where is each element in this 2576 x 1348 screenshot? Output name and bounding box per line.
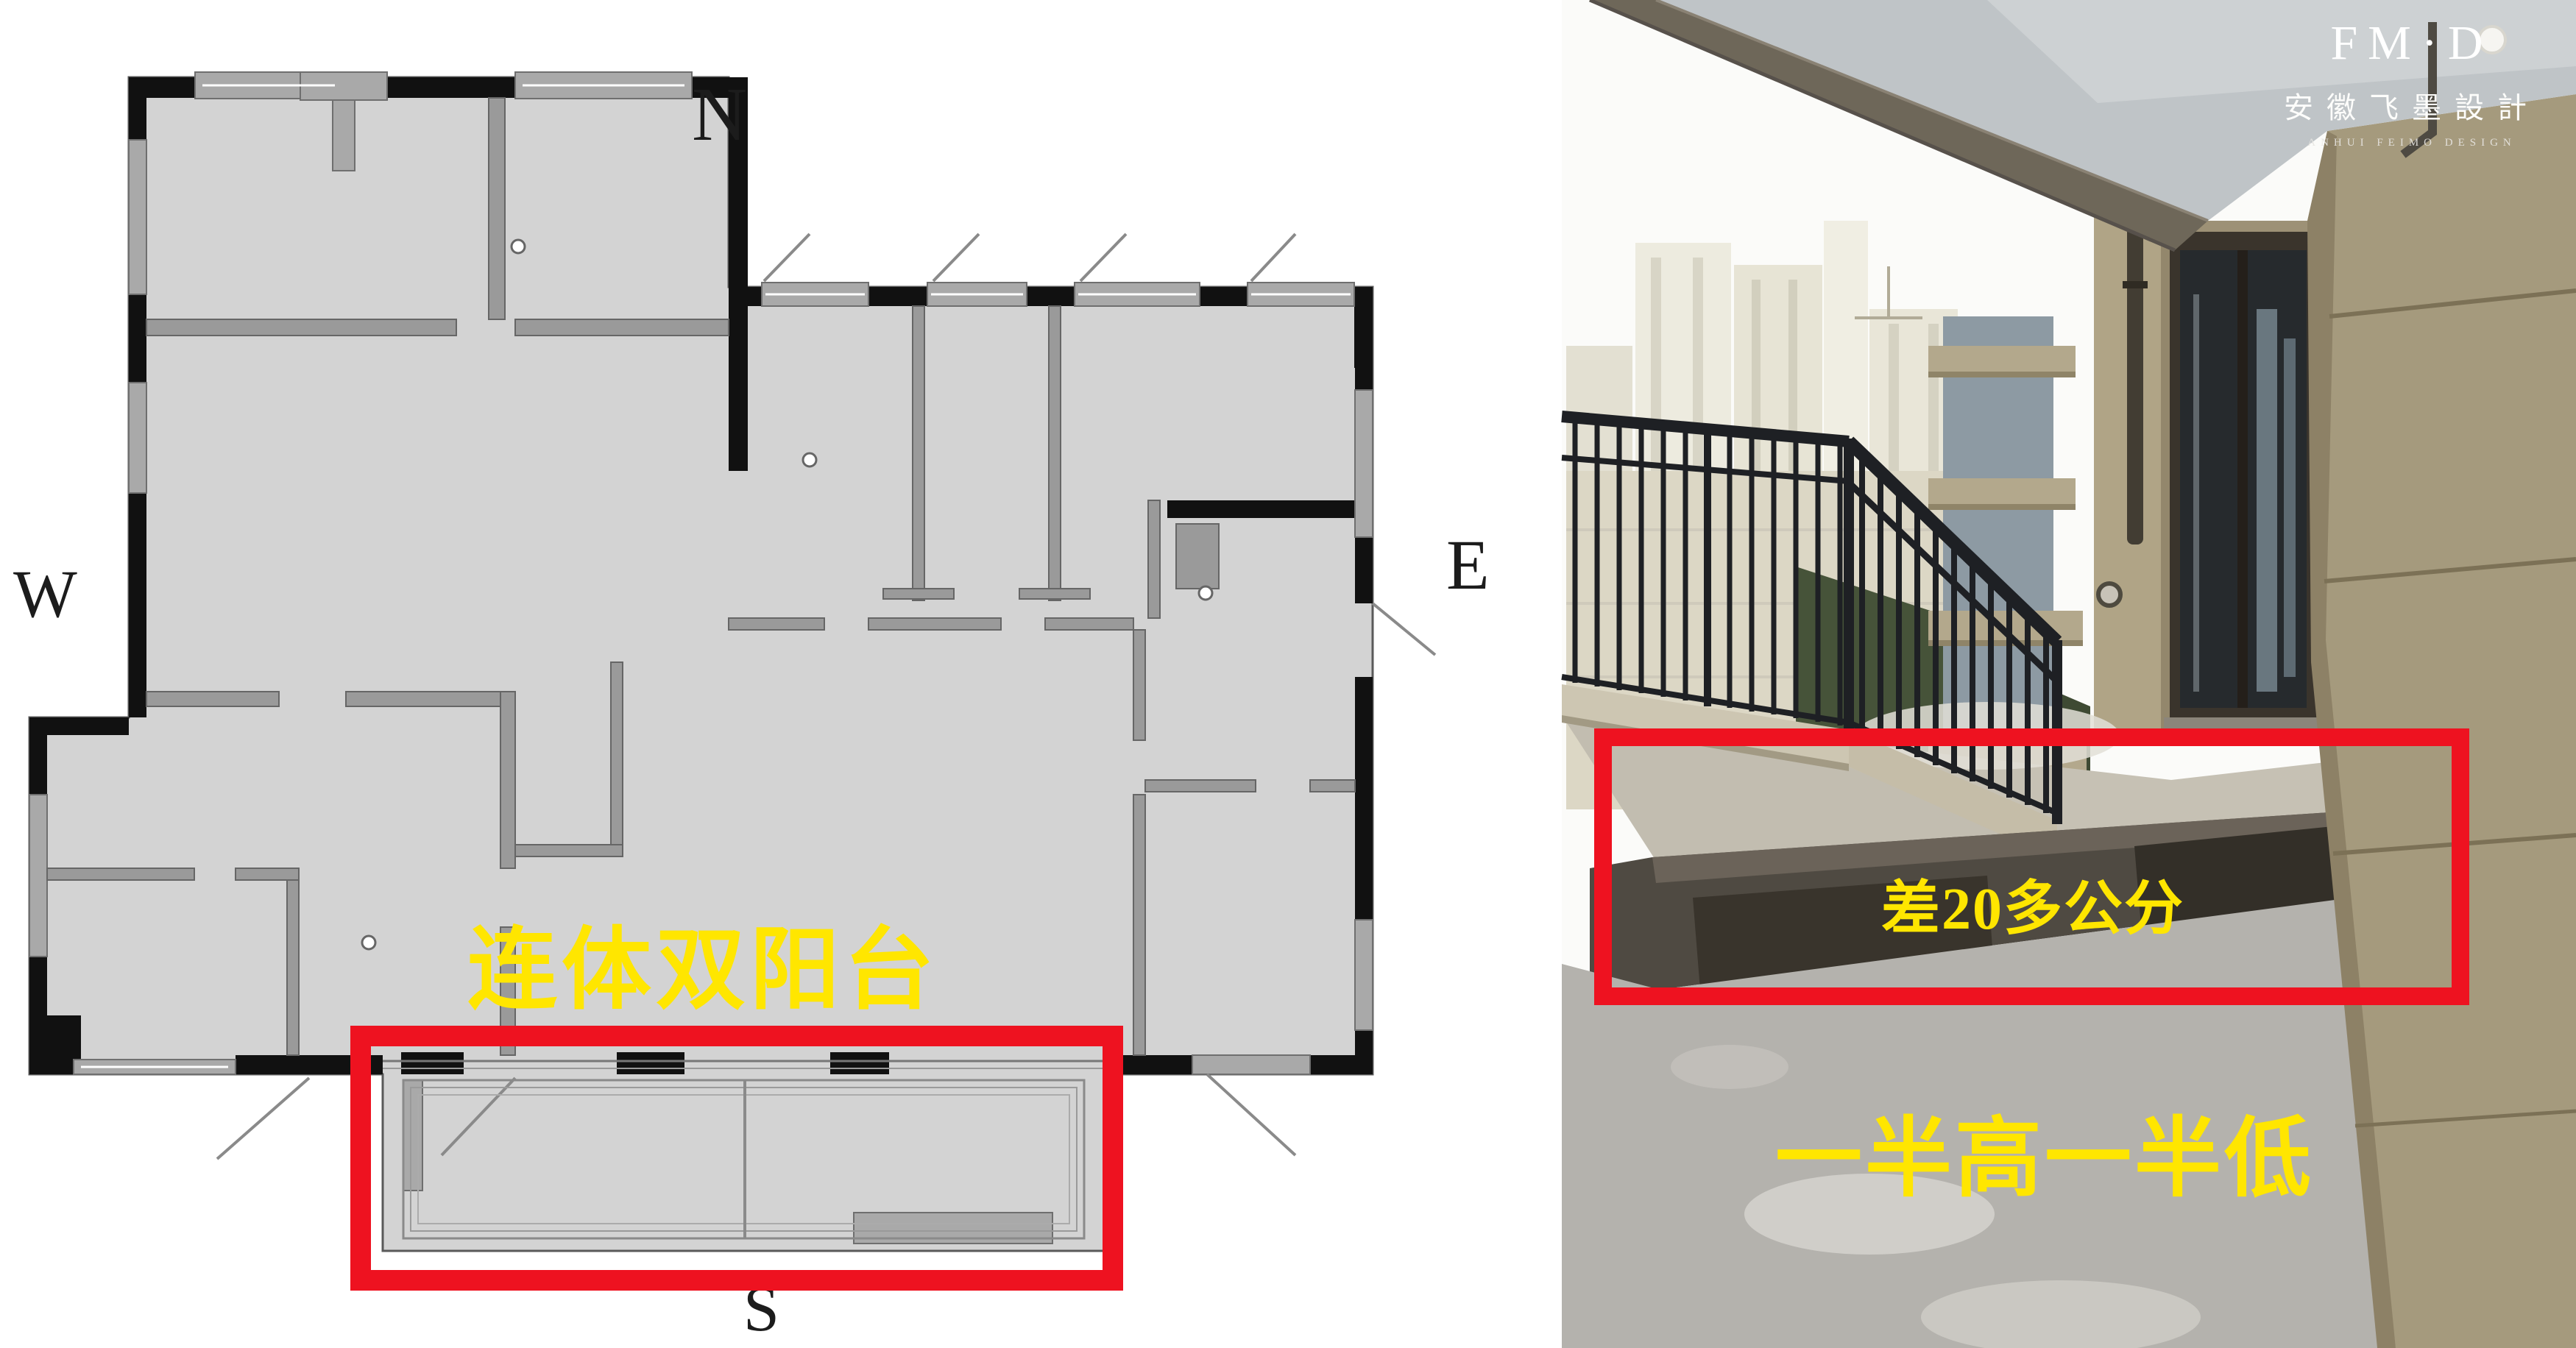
compass-north: N [692, 72, 747, 157]
screenshot-collage: N W E S 连体双阳台 [0, 0, 2576, 1348]
sliding-door [2164, 221, 2322, 734]
logo-company-cn: 安徽飞墨設計 [2284, 91, 2540, 124]
floor-plan: N W E S 连体双阳台 [13, 72, 1490, 1345]
compass-east: E [1446, 525, 1490, 604]
plan-caption: 连体双阳台 [467, 921, 938, 1021]
photo-caption: 一半高一半低 [1775, 1111, 2314, 1207]
balcony-photo: 差20多公分 一半高一半低 FM·D 安徽飞墨設計 ANHUI FEIMO DE… [1562, 0, 2576, 1348]
floor-stain-4 [1671, 1045, 1788, 1089]
compass-west: W [13, 556, 77, 631]
pilaster [2094, 217, 2171, 732]
step-annotation: 差20多公分 [1881, 877, 2184, 942]
logo-monogram: FM·D [2330, 16, 2493, 70]
logo-company-en: ANHUI FEIMO DESIGN [2307, 137, 2516, 149]
collage-canvas: N W E S 连体双阳台 [0, 0, 2576, 1348]
downpipe [2127, 221, 2143, 544]
wall-vent [2098, 583, 2120, 606]
